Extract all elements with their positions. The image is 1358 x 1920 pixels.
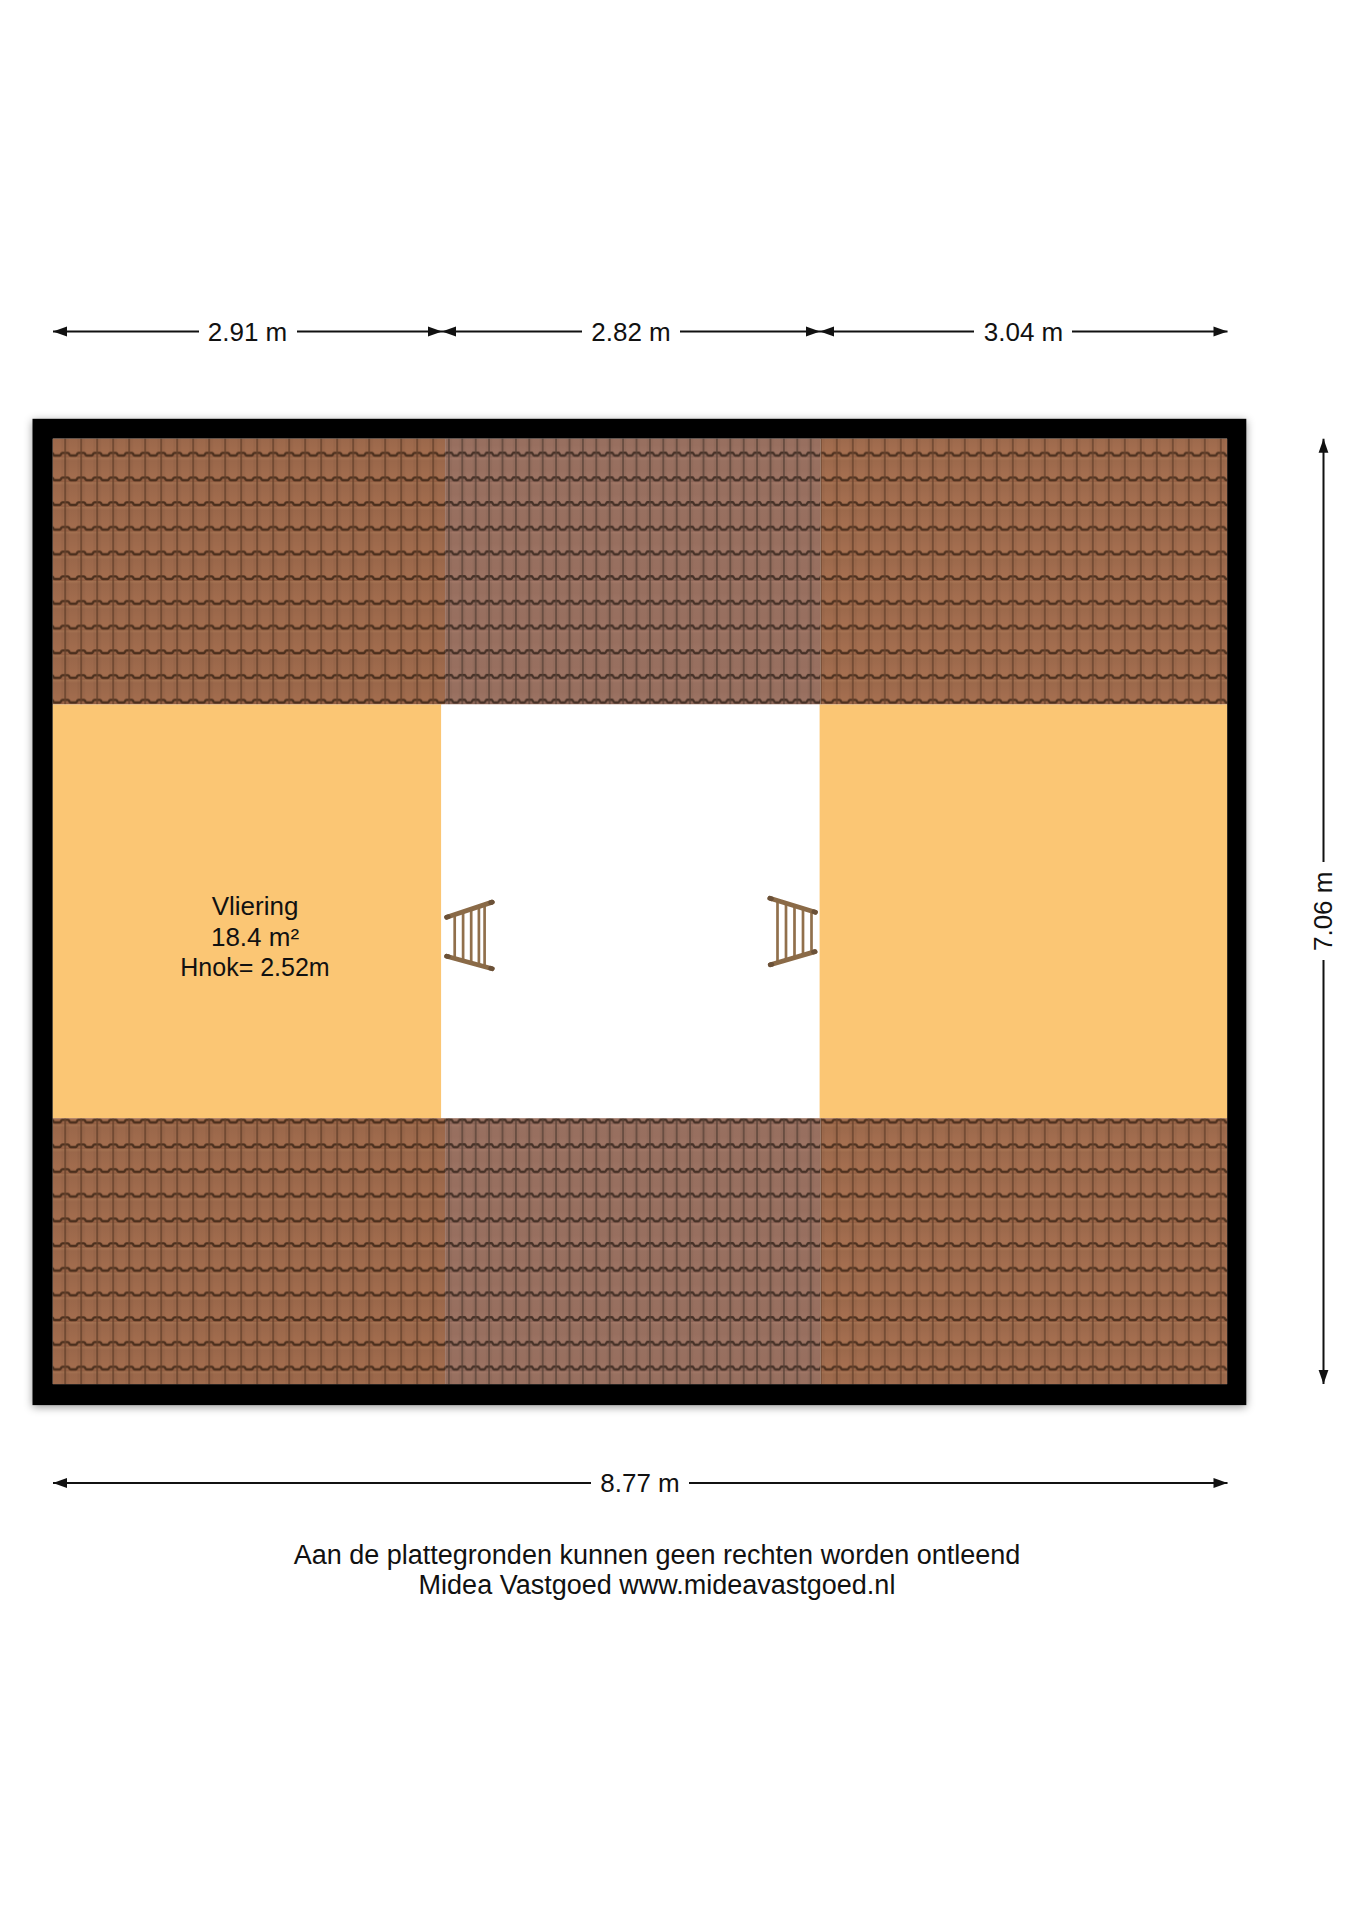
svg-text:8.77 m: 8.77 m bbox=[600, 1468, 680, 1498]
svg-text:Aan de plattegronden kunnen ge: Aan de plattegronden kunnen geen rechten… bbox=[294, 1540, 1021, 1570]
svg-text:2.91 m: 2.91 m bbox=[208, 317, 288, 347]
svg-text:2.82 m: 2.82 m bbox=[591, 317, 671, 347]
svg-text:Midea Vastgoed www.mideavastgo: Midea Vastgoed www.mideavastgoed.nl bbox=[419, 1570, 896, 1600]
svg-text:Vliering: Vliering bbox=[212, 891, 299, 921]
svg-text:Hnok= 2.52m: Hnok= 2.52m bbox=[180, 953, 329, 981]
svg-text:3.04 m: 3.04 m bbox=[984, 317, 1064, 347]
svg-text:7.06 m: 7.06 m bbox=[1309, 872, 1339, 952]
svg-text:18.4 m²: 18.4 m² bbox=[211, 922, 299, 952]
